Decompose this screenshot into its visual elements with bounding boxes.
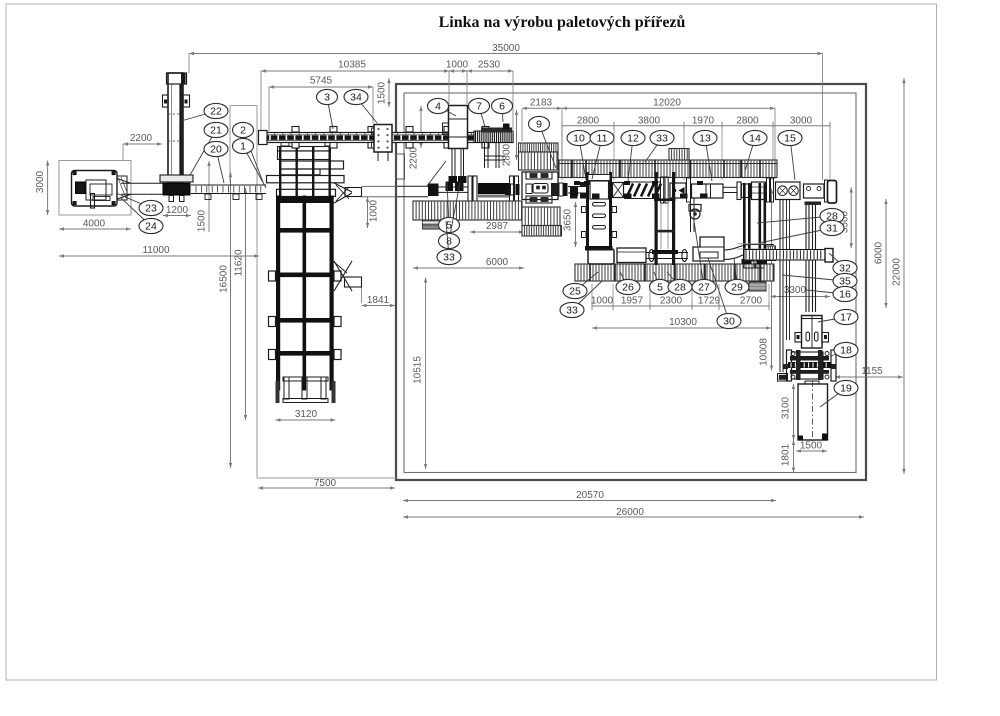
- svg-text:2300: 2300: [660, 296, 683, 307]
- svg-text:10008: 10008: [759, 338, 770, 366]
- svg-text:23: 23: [145, 203, 157, 215]
- svg-text:17: 17: [840, 312, 852, 324]
- svg-text:Linka na výrobu paletových pří: Linka na výrobu paletových přířezů: [439, 14, 686, 31]
- svg-text:2987: 2987: [486, 221, 509, 232]
- svg-text:3120: 3120: [295, 409, 318, 420]
- svg-text:13: 13: [699, 133, 711, 145]
- svg-text:10385: 10385: [338, 60, 366, 71]
- svg-text:5745: 5745: [310, 76, 333, 87]
- svg-text:1155: 1155: [861, 366, 883, 377]
- svg-text:1: 1: [240, 141, 246, 153]
- svg-text:16500: 16500: [219, 265, 230, 293]
- svg-text:1500: 1500: [377, 81, 388, 104]
- svg-text:11: 11: [597, 133, 608, 145]
- svg-text:7500: 7500: [314, 478, 337, 489]
- svg-text:18: 18: [840, 345, 852, 357]
- svg-text:1500: 1500: [197, 209, 208, 232]
- svg-text:2530: 2530: [478, 60, 501, 71]
- svg-text:4: 4: [435, 101, 441, 113]
- svg-text:20: 20: [210, 144, 222, 156]
- svg-text:4000: 4000: [83, 219, 106, 230]
- svg-text:14: 14: [749, 133, 761, 145]
- svg-text:5: 5: [657, 282, 663, 294]
- svg-text:1200: 1200: [166, 205, 189, 216]
- svg-text:12: 12: [627, 133, 639, 145]
- svg-text:26000: 26000: [616, 507, 644, 518]
- svg-text:11000: 11000: [142, 245, 170, 256]
- svg-text:7: 7: [476, 101, 482, 113]
- svg-text:3300: 3300: [784, 285, 807, 296]
- svg-text:2700: 2700: [740, 296, 763, 307]
- svg-text:2200: 2200: [409, 146, 420, 169]
- svg-text:2800: 2800: [736, 116, 759, 127]
- svg-text:21: 21: [210, 125, 222, 137]
- svg-text:16: 16: [839, 289, 851, 301]
- svg-text:24: 24: [145, 221, 157, 233]
- svg-text:1000: 1000: [591, 296, 614, 307]
- svg-text:3000: 3000: [790, 116, 813, 127]
- svg-text:2800: 2800: [577, 116, 600, 127]
- svg-text:1970: 1970: [692, 116, 715, 127]
- svg-text:2183: 2183: [530, 98, 553, 109]
- svg-text:20570: 20570: [576, 490, 604, 501]
- svg-text:10: 10: [573, 133, 585, 145]
- svg-text:33: 33: [656, 133, 668, 145]
- svg-text:6000: 6000: [486, 257, 509, 268]
- svg-text:33: 33: [443, 252, 455, 264]
- svg-text:1500: 1500: [800, 441, 823, 452]
- svg-text:1000: 1000: [369, 199, 380, 222]
- svg-text:11620: 11620: [234, 249, 245, 277]
- svg-text:34: 34: [350, 92, 362, 104]
- svg-text:2800: 2800: [502, 143, 513, 166]
- svg-text:6000: 6000: [874, 241, 885, 264]
- svg-text:1841: 1841: [367, 295, 390, 306]
- svg-text:3: 3: [324, 92, 330, 104]
- svg-text:1801: 1801: [781, 443, 792, 466]
- svg-text:22: 22: [210, 106, 222, 118]
- svg-text:1957: 1957: [621, 296, 644, 307]
- svg-text:31: 31: [826, 223, 838, 235]
- svg-text:30: 30: [723, 316, 735, 328]
- svg-text:9: 9: [536, 119, 542, 131]
- svg-text:3800: 3800: [638, 116, 661, 127]
- svg-text:3000: 3000: [35, 170, 46, 193]
- svg-text:29: 29: [731, 282, 743, 294]
- svg-text:19: 19: [840, 383, 852, 395]
- svg-text:27: 27: [698, 282, 710, 294]
- svg-text:35: 35: [839, 276, 851, 288]
- svg-text:1729: 1729: [698, 296, 721, 307]
- svg-text:3650: 3650: [563, 208, 574, 231]
- svg-text:12020: 12020: [653, 98, 681, 109]
- svg-text:2: 2: [240, 125, 246, 137]
- svg-text:3100: 3100: [781, 396, 792, 419]
- svg-text:25: 25: [569, 286, 581, 298]
- svg-text:35000: 35000: [492, 43, 520, 54]
- svg-text:10300: 10300: [669, 317, 697, 328]
- svg-text:15: 15: [784, 133, 796, 145]
- svg-text:6: 6: [499, 101, 505, 113]
- svg-text:2200: 2200: [130, 133, 153, 144]
- svg-text:26: 26: [622, 282, 634, 294]
- svg-text:33: 33: [566, 305, 578, 317]
- svg-text:32: 32: [839, 263, 851, 275]
- svg-text:10515: 10515: [413, 356, 424, 384]
- svg-text:22000: 22000: [892, 258, 903, 286]
- svg-text:1000: 1000: [446, 60, 469, 71]
- svg-text:28: 28: [674, 282, 686, 294]
